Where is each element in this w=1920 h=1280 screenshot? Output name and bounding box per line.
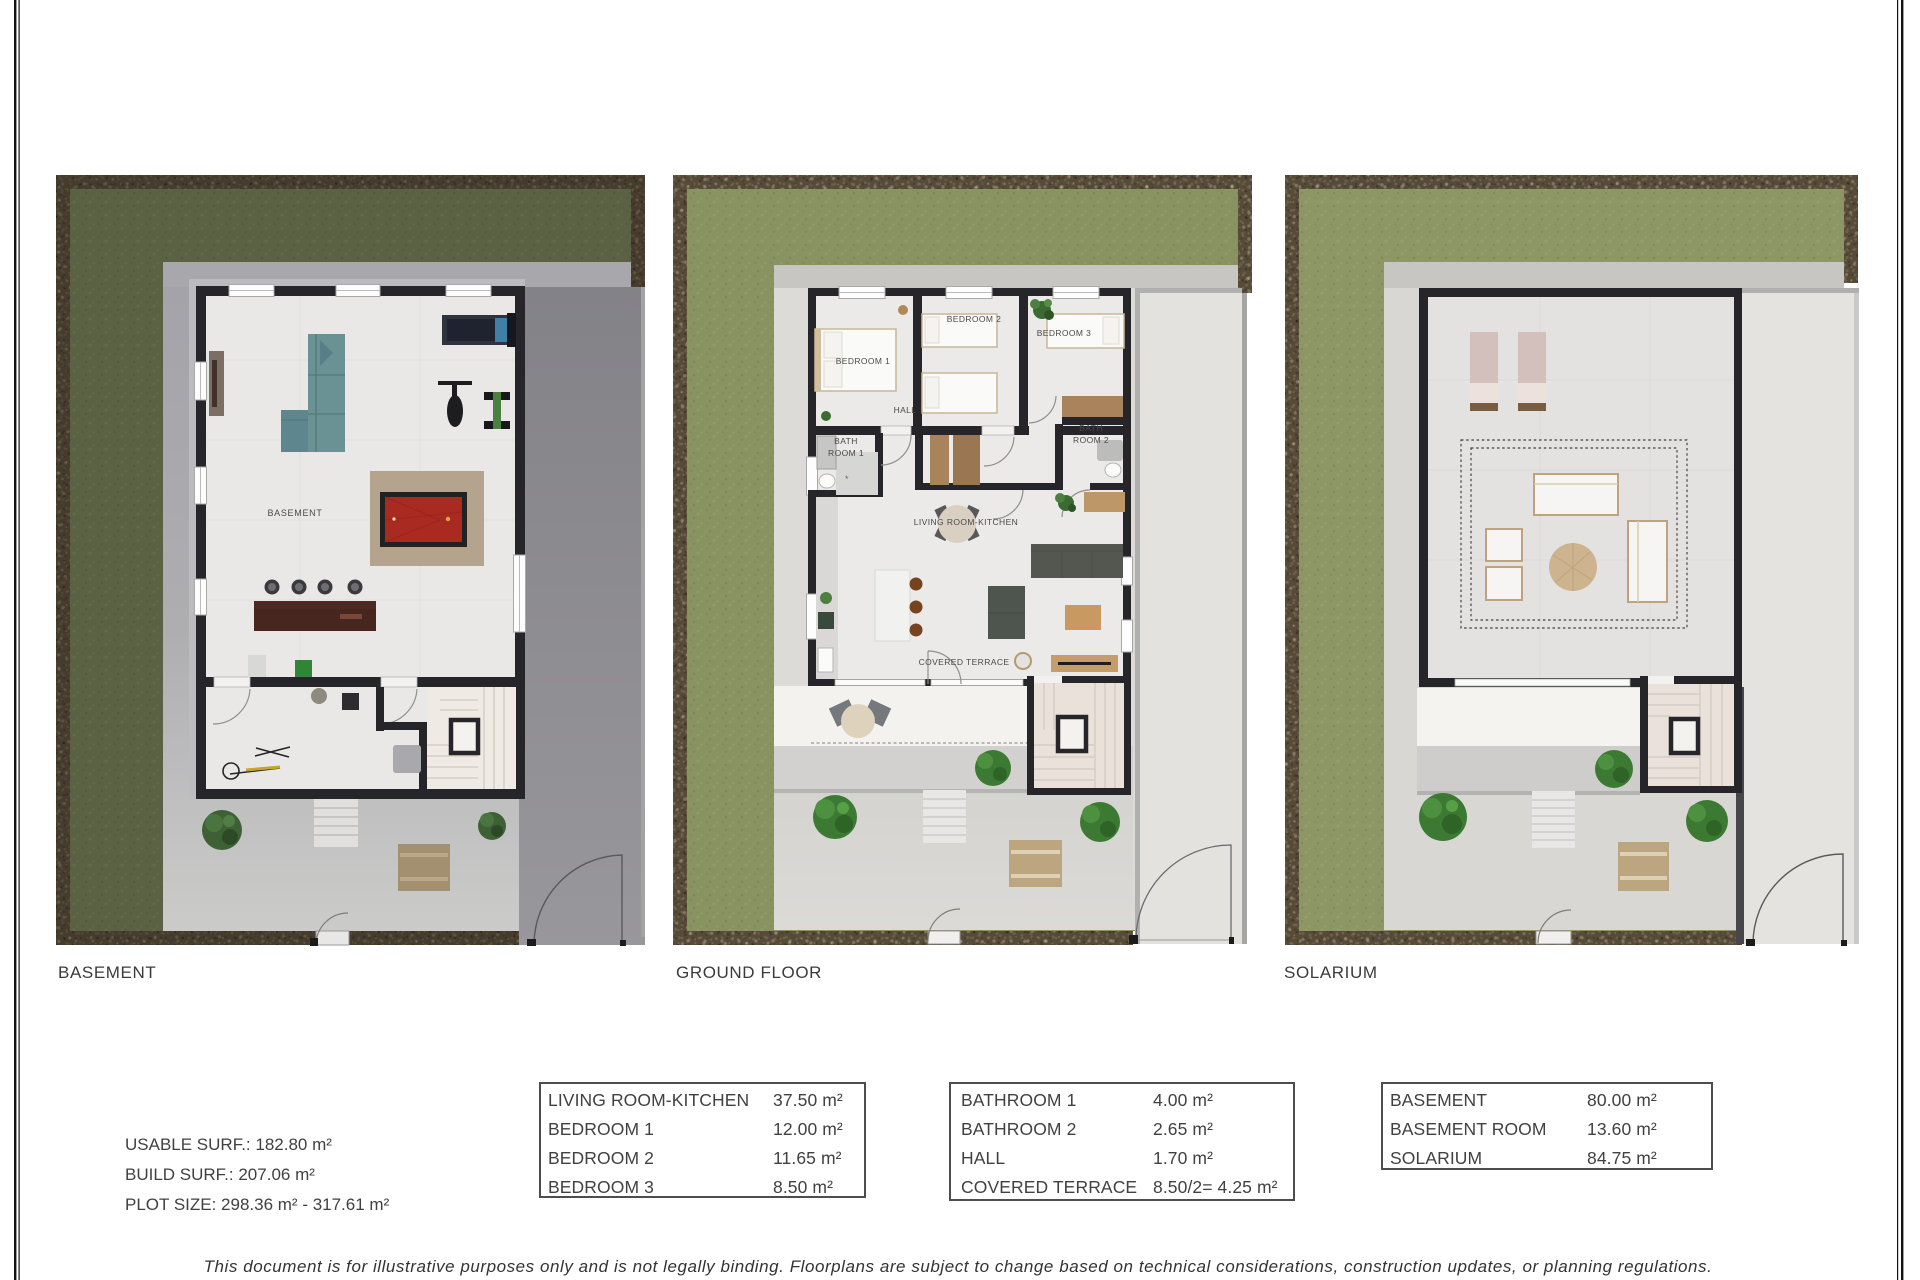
svg-text:4.00 m²: 4.00 m² [1153,1090,1213,1110]
svg-text:HALL: HALL [961,1148,1005,1168]
svg-text:BASEMENT: BASEMENT [58,963,156,982]
svg-text:This document is for illustrat: This document is for illustrative purpos… [204,1257,1713,1276]
svg-text:8.50 m²: 8.50 m² [773,1177,833,1197]
svg-text:BEDROOM 3: BEDROOM 3 [548,1177,654,1197]
svg-text:COVERED TERRACE: COVERED TERRACE [919,657,1010,667]
svg-text:12.00 m²: 12.00 m² [773,1119,843,1139]
svg-text:BATHROOM 1: BATHROOM 1 [961,1090,1076,1110]
svg-text:ROOM 2: ROOM 2 [1073,435,1109,445]
svg-text:BEDROOM 1: BEDROOM 1 [548,1119,654,1139]
svg-text:80.00 m²: 80.00 m² [1587,1090,1657,1110]
svg-text:BASEMENT: BASEMENT [1390,1090,1487,1110]
svg-text:8.50/2= 4.25 m²: 8.50/2= 4.25 m² [1153,1177,1278,1197]
svg-text:BEDROOM 3: BEDROOM 3 [1037,328,1092,338]
svg-text:13.60 m²: 13.60 m² [1587,1119,1657,1139]
svg-text:BUILD SURF.: 207.06 m²: BUILD SURF.: 207.06 m² [125,1165,315,1184]
svg-text:SOLARIUM: SOLARIUM [1390,1148,1482,1168]
svg-text:1.70 m²: 1.70 m² [1153,1148,1213,1168]
svg-text:BASEMENT ROOM: BASEMENT ROOM [1390,1119,1547,1139]
svg-text:SOLARIUM: SOLARIUM [1284,963,1378,982]
svg-text:BATH: BATH [834,436,858,446]
svg-text:BATH: BATH [1079,423,1103,433]
svg-text:*: * [845,474,849,484]
svg-text:BATHROOM 2: BATHROOM 2 [961,1119,1076,1139]
svg-text:BEDROOM 2: BEDROOM 2 [548,1148,654,1168]
svg-text:LIVING ROOM-KITCHEN: LIVING ROOM-KITCHEN [548,1090,749,1110]
svg-text:BEDROOM 1: BEDROOM 1 [836,356,891,366]
svg-text:37.50 m²: 37.50 m² [773,1090,843,1110]
svg-text:BASEMENT: BASEMENT [267,508,322,518]
svg-text:USABLE SURF.: 182.80 m²: USABLE SURF.: 182.80 m² [125,1135,332,1154]
svg-text:GROUND FLOOR: GROUND FLOOR [676,963,822,982]
svg-text:PLOT SIZE: 298.36 m² - 317.61: PLOT SIZE: 298.36 m² - 317.61 m² [125,1195,390,1214]
svg-text:COVERED TERRACE: COVERED TERRACE [961,1177,1137,1197]
svg-text:2.65 m²: 2.65 m² [1153,1119,1213,1139]
svg-text:84.75 m²: 84.75 m² [1587,1148,1657,1168]
svg-text:11.65 m²: 11.65 m² [773,1148,842,1168]
svg-text:ROOM 1: ROOM 1 [828,448,864,458]
svg-text:LIVING ROOM-KITCHEN: LIVING ROOM-KITCHEN [914,517,1018,527]
svg-text:HALL: HALL [894,405,917,415]
svg-text:BEDROOM 2: BEDROOM 2 [947,314,1002,324]
